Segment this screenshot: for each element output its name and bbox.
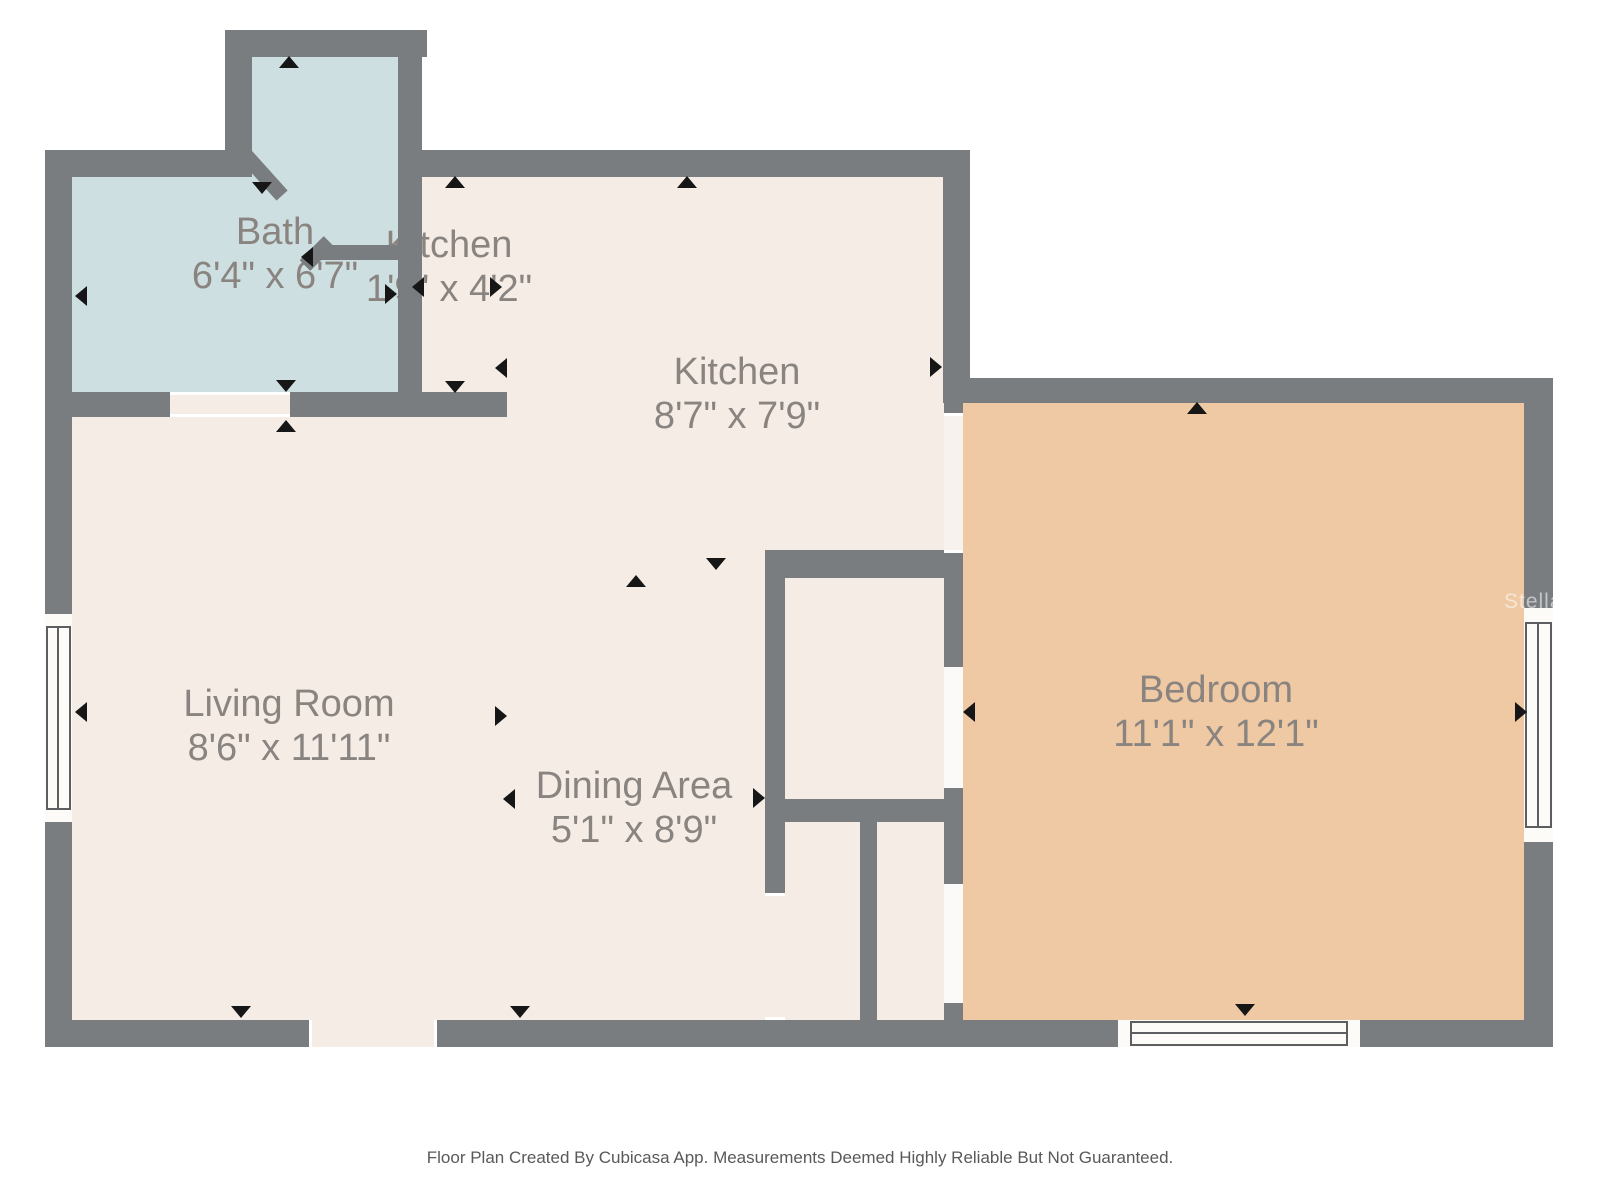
wall-hall-top: [765, 550, 963, 578]
arrow-marker-icon: [626, 575, 646, 587]
arrow-marker-icon: [706, 558, 726, 570]
room-name: Bedroom: [1113, 668, 1319, 712]
arrow-marker-icon: [963, 702, 975, 722]
door-opening-bedroom-closet-lower: [944, 884, 963, 1003]
floor-plan: Bath 6'4" x 6'7" Kitchen 1'9" x 4'2" Kit…: [0, 0, 1600, 1200]
room-name: Living Room: [183, 682, 394, 726]
arrow-marker-icon: [445, 176, 465, 188]
room-dims: 5'1" x 8'9": [536, 808, 732, 852]
room-label-dining-area: Dining Area 5'1" x 8'9": [536, 764, 732, 852]
arrow-marker-icon: [1515, 702, 1527, 722]
arrow-marker-icon: [1187, 402, 1207, 414]
wall-bedroom-top: [962, 378, 1553, 403]
opening-kitchen-to-bedroom: [944, 413, 963, 553]
arrow-marker-icon: [276, 380, 296, 392]
wall-hall-left: [765, 550, 785, 893]
arrow-marker-icon: [510, 1006, 530, 1018]
room-label-kitchen: Kitchen 8'7" x 7'9": [654, 350, 820, 438]
room-dims: 8'7" x 7'9": [654, 394, 820, 438]
arrow-marker-icon: [279, 56, 299, 68]
arrow-marker-icon: [495, 706, 507, 726]
window-bedroom-right: [1524, 608, 1553, 842]
wall-bath-bottom-left: [72, 392, 170, 417]
door-arrow-icon: [252, 182, 272, 194]
arrow-marker-icon: [930, 357, 942, 377]
room-name: Dining Area: [536, 764, 732, 808]
wall-top-left-exterior: [45, 150, 225, 177]
arrow-marker-icon: [490, 277, 502, 297]
room-label-living-room: Living Room 8'6" x 11'11": [183, 682, 394, 770]
door-opening-bath: [170, 392, 290, 417]
room-dims: 6'4" x 6'7": [192, 254, 358, 298]
wall-bath-bottom-right: [290, 392, 507, 417]
stellar-mls-watermark: StellarMLS: [1504, 590, 1600, 614]
arrow-marker-icon: [445, 381, 465, 393]
wall-hall-middle: [765, 799, 963, 822]
wall-bath-right: [398, 30, 422, 392]
wall-top-kitchen-exterior: [422, 150, 970, 177]
room-dims: 8'6" x 11'11": [183, 726, 394, 770]
door-opening-bedroom-closet-upper: [944, 667, 963, 788]
arrow-marker-icon: [753, 788, 765, 808]
arrow-marker-icon: [495, 358, 507, 378]
wall-bath-nook-top: [225, 30, 427, 57]
footer-disclaimer: Floor Plan Created By Cubicasa App. Meas…: [0, 1148, 1600, 1168]
room-label-bedroom: Bedroom 11'1" x 12'1": [1113, 668, 1319, 756]
door-arrow-icon: [301, 247, 313, 267]
room-dims: 11'1" x 12'1": [1113, 712, 1319, 756]
wall-kitchen-right: [943, 150, 970, 403]
arrow-marker-icon: [276, 420, 296, 432]
door-opening-dining-closet: [765, 893, 785, 1020]
arrow-marker-icon: [231, 1006, 251, 1018]
arrow-marker-icon: [503, 789, 515, 809]
arrow-marker-icon: [75, 286, 87, 306]
window-bedroom-bottom: [1118, 1020, 1360, 1047]
room-name: Kitchen: [654, 350, 820, 394]
wall-left-exterior: [45, 150, 72, 1047]
bath-nook-floor-area: [252, 57, 398, 177]
arrow-marker-icon: [75, 702, 87, 722]
arrow-marker-icon: [412, 277, 424, 297]
door-opening-front-entry: [309, 1020, 437, 1047]
wall-closet-divider: [860, 822, 877, 1020]
arrow-marker-icon: [1235, 1004, 1255, 1016]
window-pane-line: [1132, 1032, 1346, 1034]
window-living-room-left: [45, 614, 72, 822]
window-pane-line: [57, 628, 59, 808]
window-pane-line: [1537, 624, 1539, 826]
arrow-marker-icon: [385, 284, 397, 304]
arrow-marker-icon: [677, 176, 697, 188]
